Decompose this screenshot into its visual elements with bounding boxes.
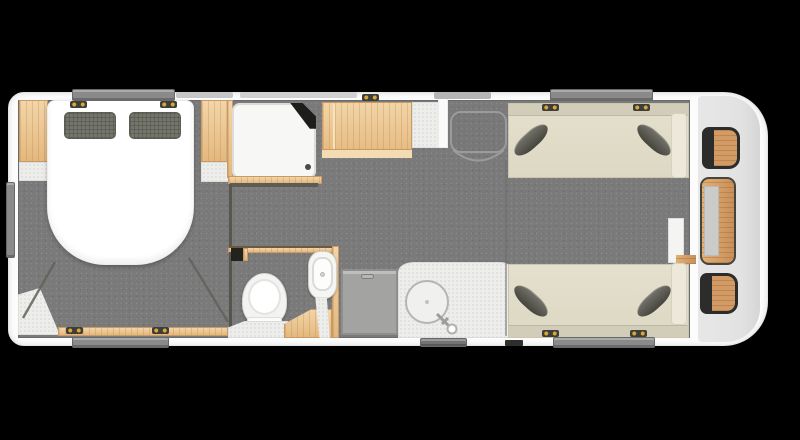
rug-lines — [23, 258, 228, 322]
detail-overlay — [0, 0, 800, 440]
entrance-door — [451, 112, 506, 161]
floorplan-canvas — [0, 0, 800, 440]
tap-icon — [437, 314, 457, 334]
